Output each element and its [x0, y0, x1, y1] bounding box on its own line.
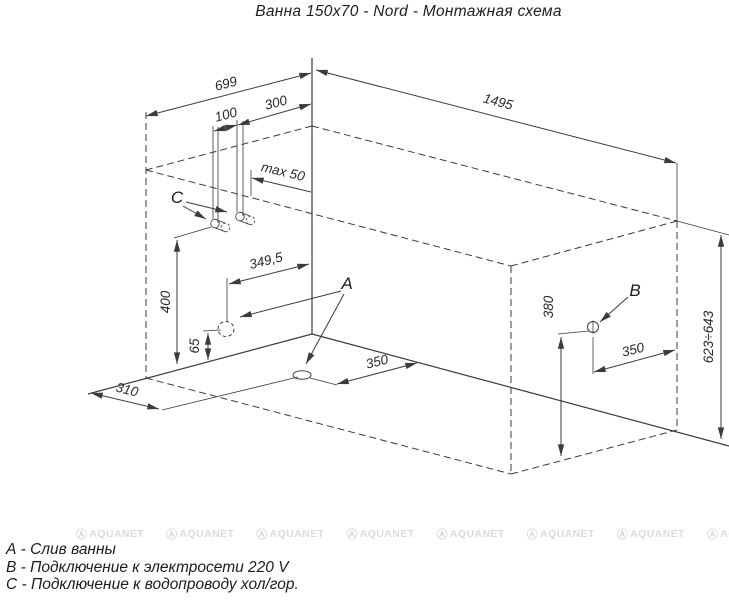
- dim-label-tub-width: 699: [213, 73, 239, 93]
- bathtub-dashed-outline: [146, 112, 677, 474]
- watermark: ⒶAQUANET: [76, 526, 144, 542]
- point-label-c: C: [171, 188, 184, 207]
- dim-label-socket-height: 380: [541, 295, 556, 318]
- electrical-socket-point: [588, 321, 599, 334]
- watermark-text: AQUANET: [540, 528, 595, 540]
- watermark-text: AQUANET: [360, 528, 415, 540]
- dim-label-pipe-protrusion: max 50: [260, 159, 307, 184]
- aquanet-circle-icon: Ⓐ: [256, 526, 267, 542]
- watermark: ⒶAQUANET: [166, 526, 234, 542]
- installation-drawing-page: Ванна 150x70 - Nord - Монтажная схема: [0, 0, 729, 600]
- watermark: ⒶAQUANET: [346, 526, 414, 542]
- point-label-a: A: [340, 274, 352, 293]
- dim-label-drain-left-offset: 310: [114, 380, 140, 400]
- legend-item-c: С - Подключение к водопроводу хол/гор.: [6, 576, 299, 594]
- aquanet-circle-icon: Ⓐ: [707, 526, 718, 542]
- aquanet-circle-icon: Ⓐ: [527, 526, 538, 542]
- aquanet-circle-icon: Ⓐ: [76, 526, 87, 542]
- extension-lines: [162, 163, 729, 410]
- dim-label-rim-height-range: 623÷643: [701, 310, 716, 363]
- dim-label-tub-length: 1495: [482, 91, 515, 113]
- watermark-text: AQUANET: [450, 528, 505, 540]
- dimension-lines: [91, 70, 721, 456]
- watermark-text: AQUANET: [630, 528, 685, 540]
- water-supply-pipes: [211, 120, 255, 232]
- watermark-text: AQUANET: [89, 528, 144, 540]
- point-label-b: B: [629, 281, 640, 300]
- dim-label-drain-right-offset: 350: [364, 352, 390, 372]
- watermark: ⒶAQUANET: [256, 526, 324, 542]
- legend-item-a: А - Слив ванны: [6, 541, 299, 559]
- aquanet-circle-icon: Ⓐ: [346, 526, 357, 542]
- dim-label-wall-hole-height: 65: [187, 338, 202, 354]
- watermark: ⒶAQUANET: [437, 526, 505, 542]
- dim-label-pipes-spacing: 100: [213, 104, 239, 124]
- legend-item-b: В - Подключение к электросети 220 V: [6, 559, 299, 577]
- dim-label-wall-hole-offset: 349,5: [248, 249, 285, 272]
- aquanet-circle-icon: Ⓐ: [166, 526, 177, 542]
- legend: А - Слив ванны В - Подключение к электро…: [6, 541, 299, 594]
- floor-drain: [293, 371, 311, 380]
- watermark-text: AQUANET: [270, 528, 325, 540]
- watermark-text: AQUANET: [720, 528, 729, 540]
- watermark: ⒶAQUANET: [617, 526, 685, 542]
- drawing-canvas: 699 300 100 max 50 1495 349,5 400 65 310…: [0, 0, 729, 600]
- aquanet-circle-icon: Ⓐ: [617, 526, 628, 542]
- wall-drain-hole: [218, 322, 234, 337]
- watermark: ⒶAQUANET: [527, 526, 595, 542]
- dim-label-pipes-offset: 300: [263, 92, 289, 112]
- dim-label-socket-offset: 350: [620, 340, 646, 360]
- dim-label-pipes-height: 400: [158, 290, 173, 313]
- watermark-row: ⒶAQUANET ⒶAQUANET ⒶAQUANET ⒶAQUANET ⒶAQU…: [76, 526, 729, 542]
- watermark: ⒶAQUANET: [707, 526, 729, 542]
- watermark-text: AQUANET: [180, 528, 235, 540]
- aquanet-circle-icon: Ⓐ: [437, 526, 448, 542]
